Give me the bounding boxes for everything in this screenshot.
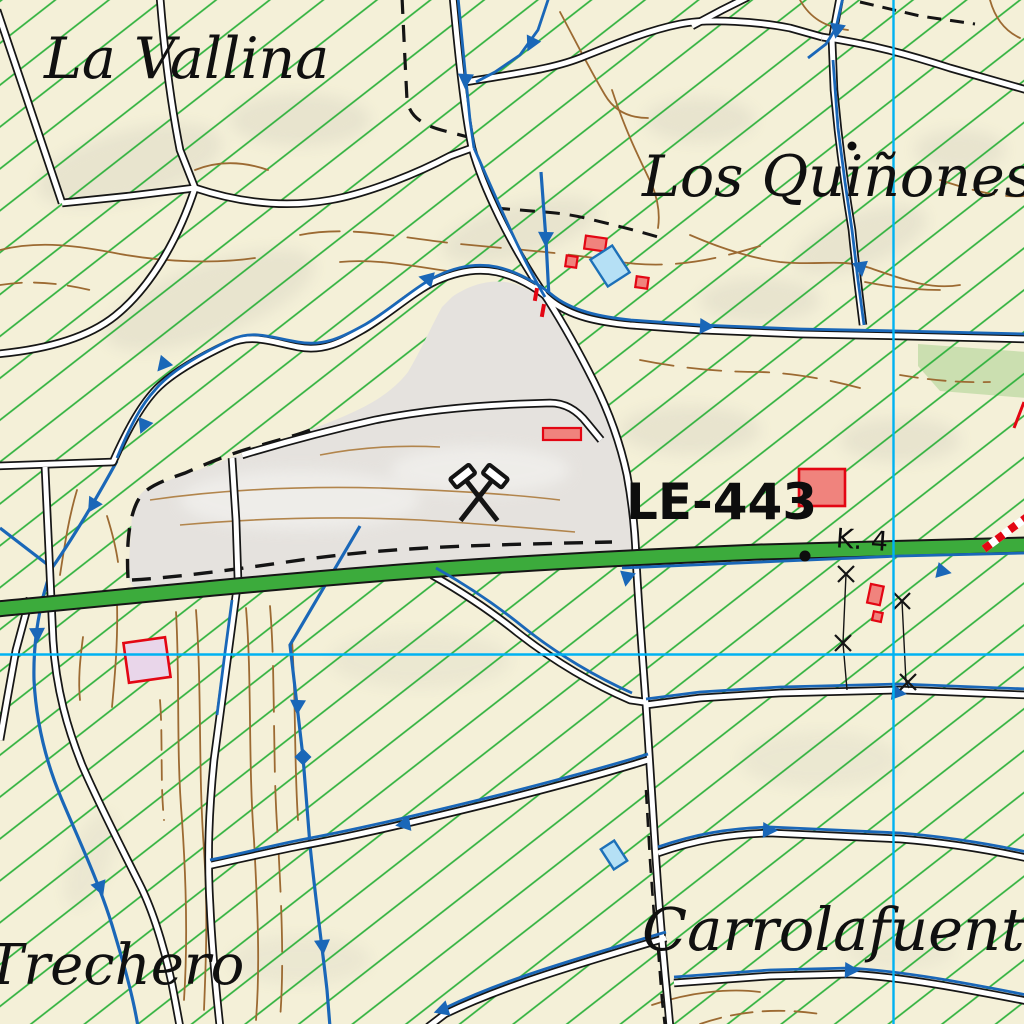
label-km-marker: K. 4 [835, 523, 889, 558]
label-los-quinones: Los Quiñones [641, 144, 1024, 210]
building [584, 236, 607, 252]
label-la-vallina: La Vallina [43, 26, 329, 92]
building-pink [123, 637, 170, 682]
building [565, 255, 577, 267]
building [867, 584, 884, 605]
label-road-ref: LE-443 [626, 473, 817, 531]
building [635, 276, 648, 289]
km-point [800, 551, 811, 562]
building [872, 611, 883, 622]
map-canvas: La Vallina Los Quiñones Trechero Carrola… [0, 0, 1024, 1024]
label-trechero: Trechero [0, 933, 244, 998]
label-carrolafuente: Carrolafuente [642, 895, 1024, 964]
topo-map: La Vallina Los Quiñones Trechero Carrola… [0, 0, 1024, 1024]
building [543, 428, 581, 440]
